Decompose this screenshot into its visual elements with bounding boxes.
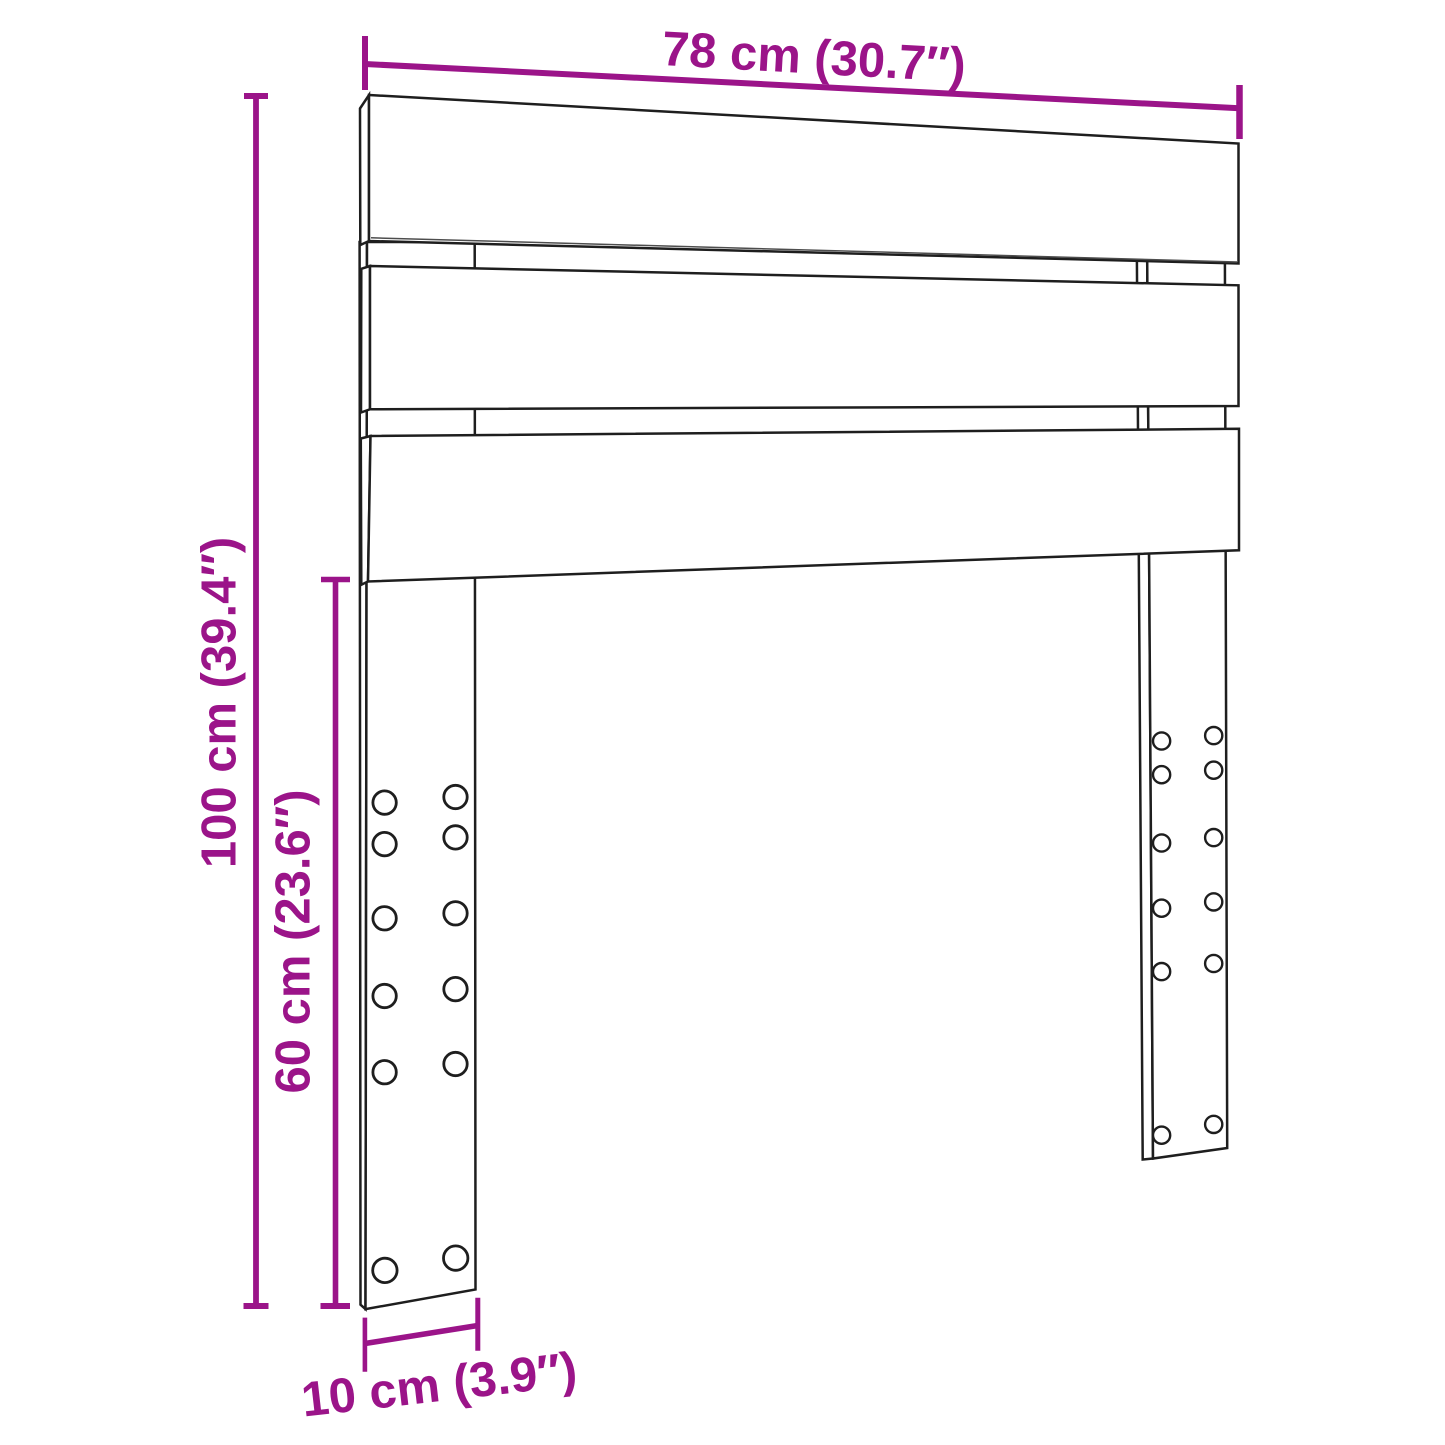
svg-text:100 cm (39.4″): 100 cm (39.4″): [193, 537, 247, 868]
svg-text:60 cm (23.6″): 60 cm (23.6″): [267, 789, 321, 1093]
